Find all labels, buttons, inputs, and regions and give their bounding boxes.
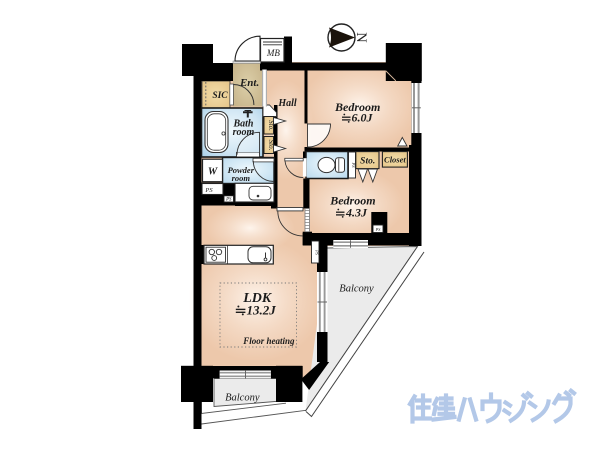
svg-text:Hall: Hall: [277, 98, 297, 109]
svg-text:4.3J: 4.3J: [345, 206, 368, 220]
svg-text:Sto.: Sto.: [267, 140, 275, 151]
svg-text:Sto.: Sto.: [360, 157, 375, 167]
svg-text:room: room: [233, 127, 255, 138]
svg-text:Balcony: Balcony: [225, 393, 260, 404]
svg-text:Sto.: Sto.: [267, 120, 275, 131]
svg-text:MB: MB: [266, 48, 280, 58]
svg-text:Balcony: Balcony: [339, 284, 374, 295]
svg-text:Ent.: Ent.: [239, 77, 259, 89]
svg-text:N: N: [353, 32, 369, 43]
svg-text:PS: PS: [204, 187, 213, 194]
svg-text:SIC: SIC: [212, 91, 228, 101]
svg-text:PS: PS: [314, 249, 319, 256]
svg-text:PS: PS: [225, 198, 232, 203]
svg-text:6.0J: 6.0J: [352, 111, 374, 125]
svg-text:Floor heating: Floor heating: [242, 336, 295, 346]
svg-text:W: W: [208, 167, 218, 178]
svg-text:room: room: [232, 173, 251, 183]
svg-text:PS: PS: [375, 227, 382, 232]
svg-text:13.2J: 13.2J: [247, 303, 277, 318]
svg-text:Closet: Closet: [384, 155, 406, 165]
